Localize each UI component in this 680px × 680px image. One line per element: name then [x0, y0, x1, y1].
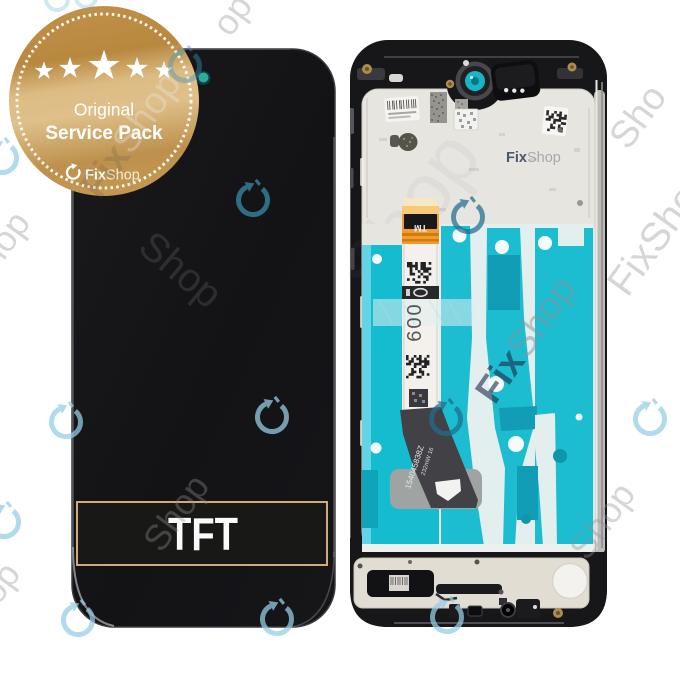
svg-text:hop: hop — [0, 203, 38, 276]
svg-text:Shop: Shop — [135, 467, 218, 559]
svg-text:FixShop: FixShop — [506, 150, 561, 166]
svg-text:op: op — [204, 0, 261, 43]
svg-text:op: op — [0, 554, 28, 610]
svg-text:FixSho: FixSho — [599, 177, 680, 304]
svg-text:FixShop: FixShop — [73, 64, 190, 206]
svg-text:Shop: Shop — [130, 223, 230, 317]
svg-text:Shop: Shop — [561, 475, 644, 567]
svg-text:Sho: Sho — [601, 77, 675, 156]
svg-text:FixShop: FixShop — [468, 269, 585, 411]
